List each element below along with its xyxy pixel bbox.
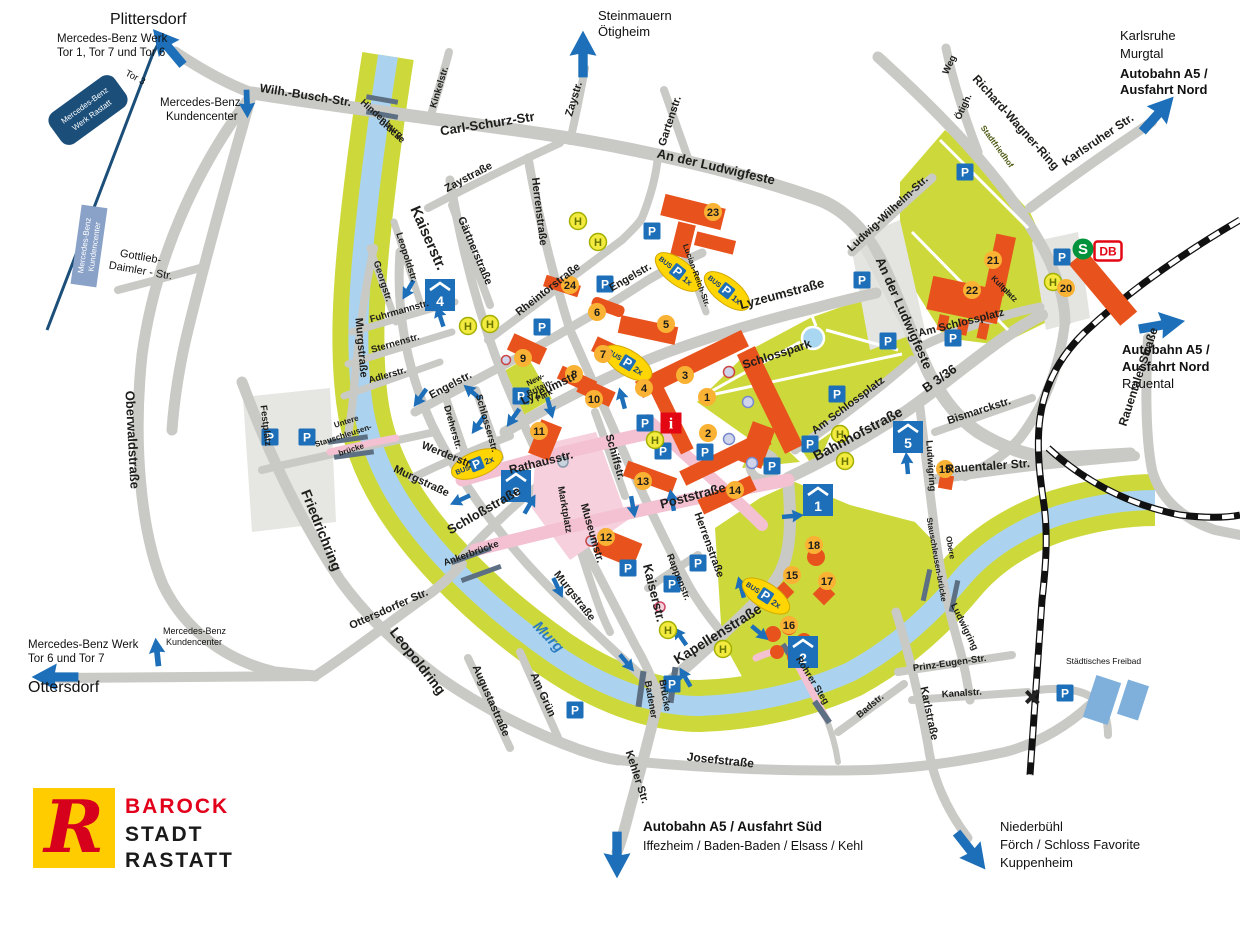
dest-a5-nord2: Ausfahrt Nord (1120, 82, 1207, 97)
dest-ottersdorf: Ottersdorf (28, 679, 100, 696)
poi-number: 4 (641, 383, 648, 395)
poi-marker-1: 1 (698, 388, 716, 406)
mercedes-werk-box-bg (44, 71, 131, 149)
dest-mb-werk-nord2: Tor 1, Tor 7 und Tor 6 (57, 47, 165, 59)
poi-number: 5 (663, 319, 669, 331)
rastatt-city-map: Mercedes-Benz Werk Rastatt Mercedes-Benz… (0, 0, 1240, 939)
logo-letter-r: R (42, 784, 104, 869)
road (175, 52, 252, 93)
parking-label: P (858, 274, 866, 288)
sbahn-icon: S (1073, 239, 1094, 260)
poi-marker-11: 11 (530, 422, 548, 440)
bus-stop-label: H (841, 456, 849, 468)
poi-number: 18 (808, 540, 820, 552)
dest-plittersdorf: Plittersdorf (110, 11, 187, 28)
dest-mb-werk-sued1: Mercedes-Benz Werk (28, 639, 139, 651)
building-16 (770, 645, 784, 659)
info-label: i (669, 416, 674, 433)
bus-stop-icon: H (570, 213, 587, 230)
street-label-leopoldring: Leopoldring (387, 624, 449, 698)
parking-label: P (768, 460, 776, 474)
poi-marker-3: 3 (676, 366, 694, 384)
parking-icon: P (1054, 249, 1071, 266)
dest-a5-nord-r2: Ausfahrt Nord (1122, 359, 1209, 374)
parking-icon: P (764, 458, 781, 475)
dest-foerch: Förch / Schloss Favorite (1000, 837, 1140, 852)
road-rheintor-ext (642, 156, 658, 218)
parking-garage-1: 1 (803, 484, 833, 516)
freibad-building (1083, 675, 1121, 725)
parking-garage-5: 5 (893, 421, 923, 453)
parking-icon: P (644, 223, 661, 240)
poi-marker-10: 10 (585, 390, 603, 408)
fountain (743, 397, 754, 408)
dest-murgtal: Murgtal (1120, 46, 1163, 61)
poi-number: 3 (682, 370, 688, 382)
dest-a5-sued2: Iffezheim / Baden-Baden / Elsass / Kehl (643, 839, 863, 853)
dest-steinmauern: Steinmauern (598, 8, 672, 23)
parking-label: P (303, 431, 311, 445)
dest-a5-nord-r1: Autobahn A5 / (1122, 342, 1210, 357)
mercedes-werk-box: Mercedes-Benz Werk Rastatt (44, 71, 131, 149)
bus-stop-icon: H (837, 453, 854, 470)
fountain (502, 356, 511, 365)
poi-marker-23: 23 (704, 203, 722, 221)
arrow-niederbuehl (946, 824, 996, 878)
poi-marker-16: 16 (780, 616, 798, 634)
logo-barock-stadt-rastatt: R BAROCK STADT RASTATT (33, 784, 234, 872)
logo-word-stadt: STADT (125, 823, 203, 846)
poi-marker-17: 17 (818, 572, 836, 590)
parking-icon: P (697, 444, 714, 461)
db-logo: DB (1095, 242, 1122, 261)
mercedes-kundencenter-box-bg (71, 205, 108, 288)
poi-marker-21: 21 (984, 251, 1002, 269)
bus-stop-icon: H (660, 622, 677, 639)
map-canvas: Mercedes-Benz Werk Rastatt Mercedes-Benz… (0, 0, 1240, 939)
poi-marker-13: 13 (634, 472, 652, 490)
parking-label: P (884, 335, 892, 349)
road-network (58, 48, 1240, 852)
parking-icon: P (534, 319, 551, 336)
parking-label: P (641, 417, 649, 431)
poi-number: 2 (705, 428, 711, 440)
street-label-prinz-eugen: Prinz-Eugen-Str. (912, 653, 987, 674)
poi-marker-22: 22 (963, 281, 981, 299)
street-label-kinkelstr: Kinkelstr. (428, 65, 451, 109)
poi-number: 11 (533, 426, 545, 438)
bus-stop-label: H (486, 319, 494, 331)
bus-stop-icon: H (647, 432, 664, 449)
parking-label: P (833, 388, 841, 402)
poi-number: 10 (588, 394, 600, 406)
bus-stop-icon: H (590, 234, 607, 251)
street-label-herrenstrasse-n: Herrenstraße (529, 177, 549, 246)
parking-icon: P (829, 386, 846, 403)
parking-icon: P (880, 333, 897, 350)
poi-number: 22 (966, 285, 978, 297)
poi-number: 13 (637, 476, 649, 488)
dest-kuppenheim: Kuppenheim (1000, 855, 1073, 870)
arrow-kundencenter-sued (147, 637, 166, 667)
road-ottersdorf (58, 564, 462, 678)
dest-kundencenter-n2: Kundencenter (166, 111, 238, 123)
dest-mb-werk-sued2: Tor 6 und Tor 7 (28, 653, 105, 665)
poi-number: 23 (707, 207, 719, 219)
parking-icon: P (299, 429, 316, 446)
poi-number: 21 (987, 255, 999, 267)
poi-number: 1 (704, 392, 710, 404)
parking-label: P (1058, 251, 1066, 265)
poi-marker-2: 2 (699, 424, 717, 442)
sbahn-label: S (1078, 241, 1088, 258)
parking-label: P (1061, 687, 1069, 701)
logo-word-rastatt: RASTATT (125, 849, 234, 872)
garage-number: 5 (904, 435, 912, 451)
poi-marker-6: 6 (588, 303, 606, 321)
poi-marker-15: 15 (783, 566, 801, 584)
dest-karlsruhe: Karlsruhe (1120, 28, 1176, 43)
poi-number: 15 (786, 570, 798, 582)
arrow-street (613, 386, 631, 411)
bus-stop-label: H (1049, 277, 1057, 289)
parking-label: P (694, 557, 702, 571)
dest-kundencenter-s1: Mercedes-Benz (163, 626, 227, 636)
parking-label: P (571, 704, 579, 718)
poi-marker-18: 18 (805, 536, 823, 554)
poi-marker-9: 9 (514, 349, 532, 367)
street-label-kaiserstr-s: Kaiserstr. (640, 562, 669, 623)
poi-number: 16 (783, 620, 795, 632)
freibad-buildings (1083, 675, 1149, 725)
db-label: DB (1099, 245, 1117, 259)
bus-stop-label: H (664, 625, 672, 637)
street-label-rauentaler-str: Rauentaler Str. (945, 456, 1030, 476)
bus-stop-label: H (719, 644, 727, 656)
dest-mb-werk-nord1: Mercedes-Benz Werk (57, 33, 168, 45)
parking-garage-4: 4 (425, 279, 455, 311)
bus-stop-label: H (574, 216, 582, 228)
poi-number: 20 (1060, 283, 1072, 295)
poi-number: 17 (821, 576, 833, 588)
freibad-building (1117, 679, 1149, 720)
dest-freibad: Städtisches Freibad (1066, 656, 1141, 666)
mercedes-kundencenter-box: Mercedes-Benz Kundencenter (71, 205, 108, 288)
poi-number: 7 (600, 349, 606, 361)
dest-oetigheim: Ötigheim (598, 24, 650, 39)
poi-marker-14: 14 (726, 481, 744, 499)
parking-icon: P (690, 555, 707, 572)
parking-label: P (624, 562, 632, 576)
dest-kundencenter-s2: Kundencenter (166, 637, 222, 647)
fountain (724, 434, 735, 445)
arrow-street (900, 451, 915, 474)
parking-icon: P (957, 164, 974, 181)
parking-label: P (949, 332, 957, 346)
dest-niederbuehl: Niederbühl (1000, 819, 1063, 834)
bus-stop-label: H (464, 321, 472, 333)
bus-stop-icon: H (482, 316, 499, 333)
dest-a5-nord1: Autobahn A5 / (1120, 66, 1208, 81)
poi-marker-4: 4 (635, 379, 653, 397)
road-rohrer-sued (826, 718, 838, 762)
parking-label: P (538, 321, 546, 335)
bus-stop-label: H (594, 237, 602, 249)
garage-number: 4 (436, 293, 444, 309)
poi-marker-7: 7 (594, 345, 612, 363)
bus-stop-label: H (651, 435, 659, 447)
parking-label: P (961, 166, 969, 180)
arrow-steinmauern (570, 31, 597, 78)
garage-number: 1 (814, 498, 822, 514)
dest-rauental: Rauental (1122, 376, 1174, 391)
parking-icon: P (1057, 685, 1074, 702)
poi-number: 6 (594, 307, 600, 319)
poi-number: 14 (729, 485, 742, 497)
street-label-ludwigfeste-top: An der Ludwigfeste (656, 146, 777, 188)
info-icon: i (661, 413, 682, 434)
logo-word-barock: BAROCK (125, 795, 229, 818)
dest-a5-sued1: Autobahn A5 / Ausfahrt Süd (643, 819, 822, 834)
parking-icon: P (620, 560, 637, 577)
parking-label: P (701, 446, 709, 460)
dest-tor3: Tor 3 (123, 68, 147, 88)
poi-marker-20: 20 (1057, 279, 1075, 297)
dest-kundencenter-n1: Mercedes-Benz (160, 97, 241, 109)
parking-icon: P (637, 415, 654, 432)
fountain (747, 458, 758, 469)
parking-icon: P (854, 272, 871, 289)
poi-number: 9 (520, 353, 526, 365)
poi-marker-5: 5 (657, 315, 675, 333)
fountain (724, 367, 735, 378)
parking-icon: P (567, 702, 584, 719)
parking-label: P (648, 225, 656, 239)
bus-stop-icon: H (460, 318, 477, 335)
